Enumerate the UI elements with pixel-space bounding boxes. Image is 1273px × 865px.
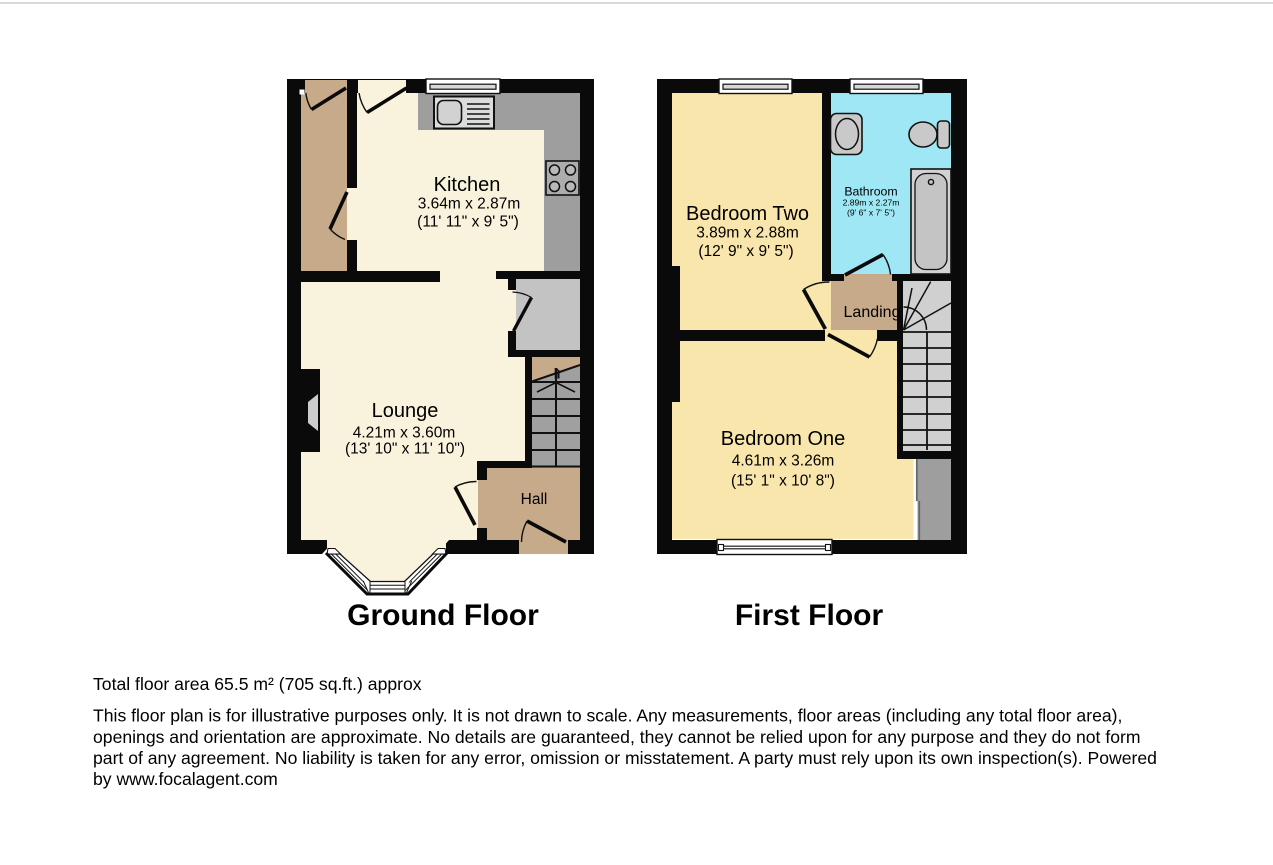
svg-text:2.89m x 2.27m: 2.89m x 2.27m <box>843 198 900 208</box>
svg-text:4.61m x 3.26m: 4.61m x 3.26m <box>732 453 835 470</box>
svg-text:4.21m x 3.60m: 4.21m x 3.60m <box>353 425 456 442</box>
svg-text:by www.focalagent.com: by www.focalagent.com <box>93 769 278 789</box>
svg-text:part of any agreement. No liab: part of any agreement. No liability is t… <box>93 748 1157 768</box>
svg-text:openings and orientation are a: openings and orientation are approximate… <box>93 727 1141 747</box>
svg-text:3.64m x 2.87m: 3.64m x 2.87m <box>418 196 521 213</box>
svg-text:Bathroom: Bathroom <box>844 185 897 199</box>
svg-text:(15' 1" x 10' 8"): (15' 1" x 10' 8") <box>731 473 835 490</box>
svg-text:Hall: Hall <box>521 491 548 508</box>
svg-text:Total floor area 65.5 m² (705: Total floor area 65.5 m² (705 sq.ft.) ap… <box>93 674 422 694</box>
svg-text:Ground Floor: Ground Floor <box>347 599 539 632</box>
svg-text:(13' 10" x 11' 10"): (13' 10" x 11' 10") <box>345 441 465 458</box>
svg-text:(11' 11" x 9' 5"): (11' 11" x 9' 5") <box>417 214 519 231</box>
svg-text:Bedroom One: Bedroom One <box>721 428 846 450</box>
svg-text:(12' 9" x 9' 5"): (12' 9" x 9' 5") <box>698 243 793 260</box>
svg-text:First Floor: First Floor <box>735 599 884 632</box>
svg-text:Landing: Landing <box>844 304 901 321</box>
svg-text:Kitchen: Kitchen <box>434 174 501 196</box>
svg-text:Bedroom Two: Bedroom Two <box>686 203 809 225</box>
svg-text:3.89m x 2.88m: 3.89m x 2.88m <box>696 225 799 242</box>
svg-text:(9' 6" x 7' 5"): (9' 6" x 7' 5") <box>847 208 895 218</box>
svg-text:This floor plan is for illustr: This floor plan is for illustrative purp… <box>93 706 1122 726</box>
svg-text:Lounge: Lounge <box>372 400 439 422</box>
